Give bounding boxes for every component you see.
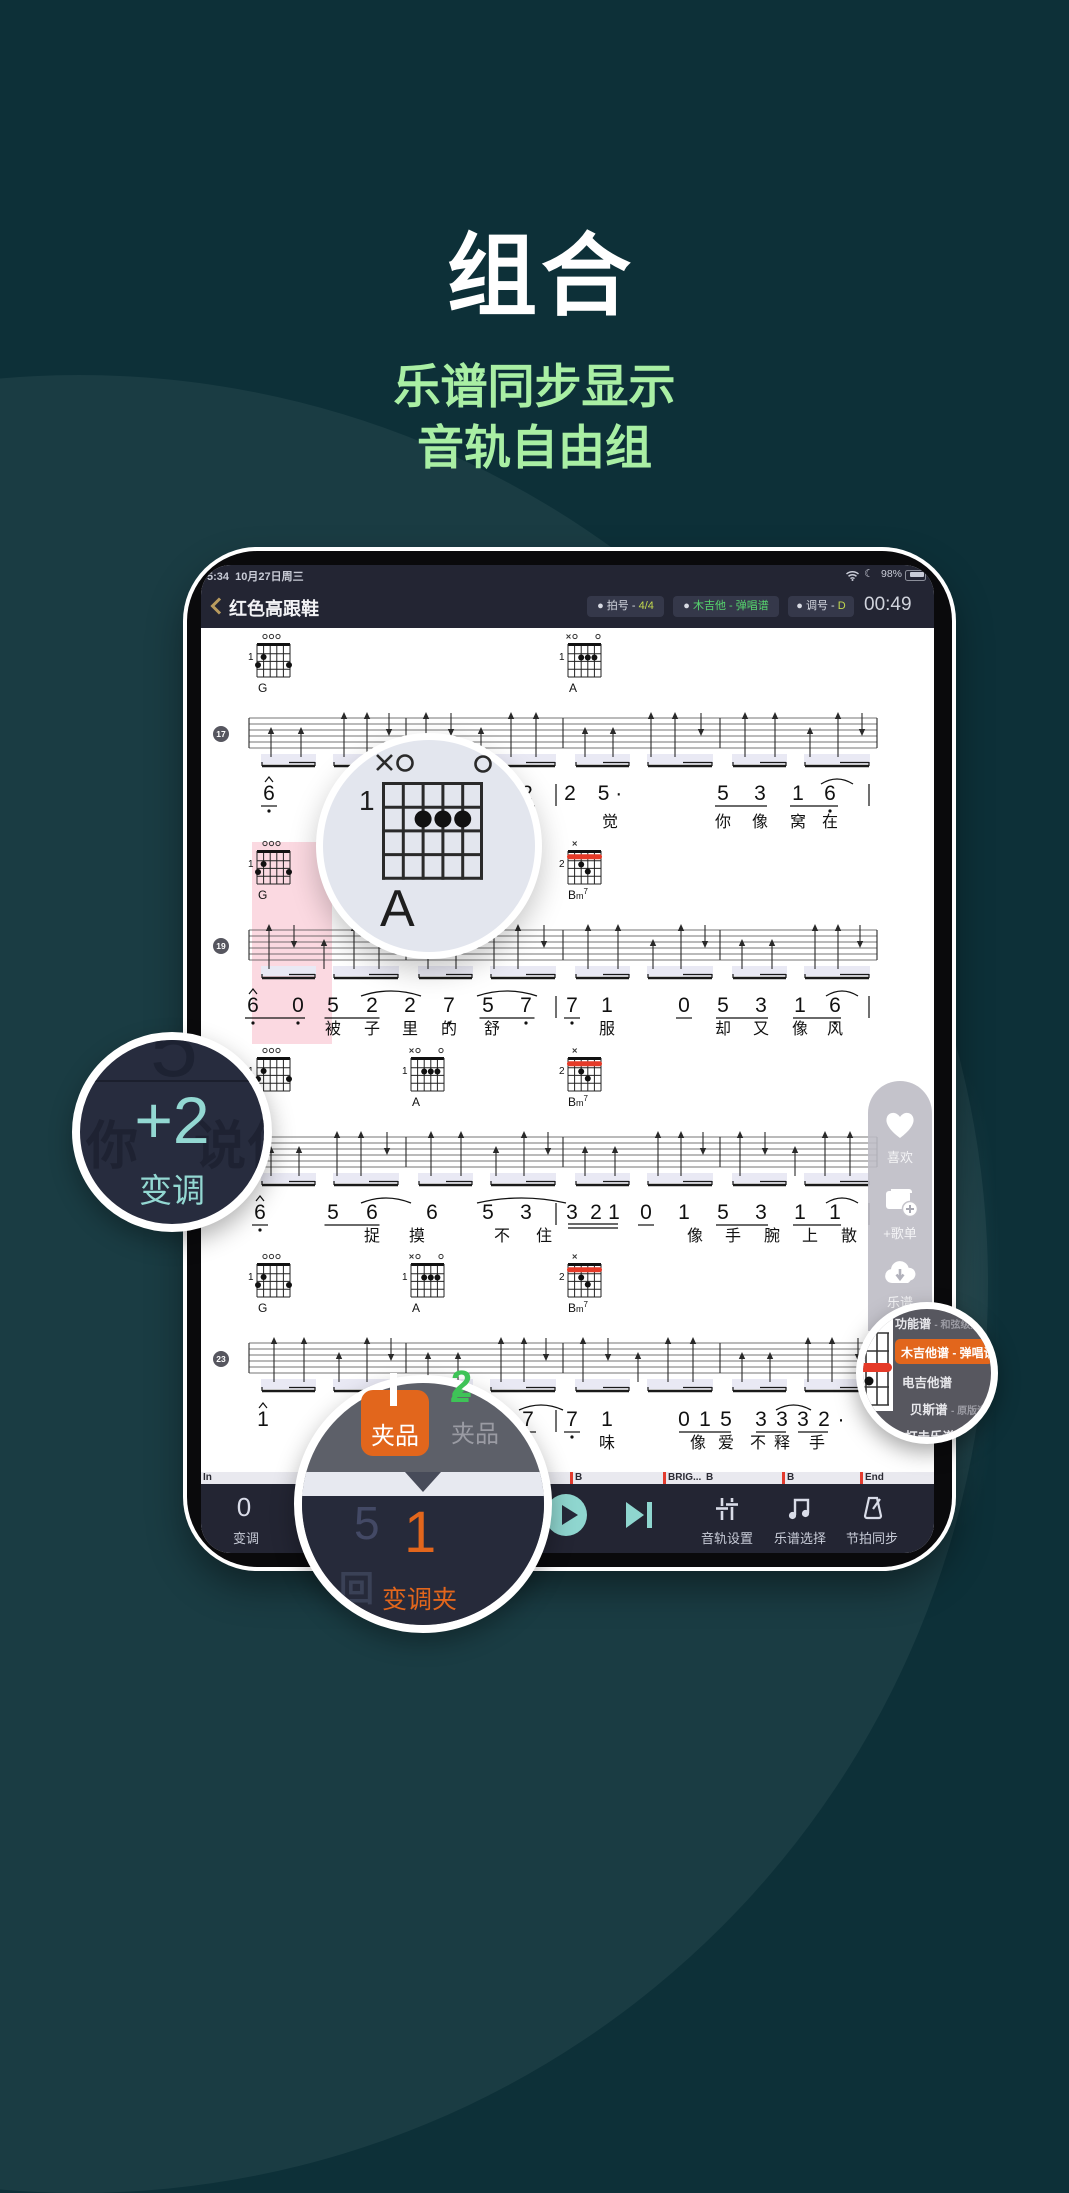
svg-text:1: 1 (794, 994, 806, 1017)
svg-text:2: 2 (590, 1201, 602, 1224)
svg-text:上: 上 (802, 1227, 818, 1245)
svg-text:0: 0 (292, 994, 304, 1017)
svg-text:被: 被 (325, 1020, 341, 1038)
svg-text:1: 1 (601, 1408, 613, 1431)
svg-text:像: 像 (752, 813, 768, 831)
svg-text:6: 6 (247, 994, 259, 1017)
svg-text:5: 5 (482, 1201, 494, 1224)
svg-text:1: 1 (678, 1201, 690, 1224)
svg-text:3: 3 (755, 994, 767, 1017)
svg-text:6: 6 (824, 782, 836, 805)
svg-text:像: 像 (687, 1227, 703, 1245)
svg-text:1: 1 (792, 782, 804, 805)
svg-text:服: 服 (599, 1020, 615, 1038)
svg-text:里: 里 (402, 1020, 418, 1038)
svg-text:不: 不 (494, 1228, 510, 1245)
svg-text:5: 5 (482, 994, 494, 1017)
svg-text:1: 1 (699, 1408, 711, 1431)
svg-text:1: 1 (257, 1408, 269, 1431)
svg-text:7: 7 (566, 1408, 578, 1431)
svg-text:5 ·: 5 · (598, 782, 623, 805)
svg-text:5: 5 (717, 994, 729, 1017)
svg-text:5: 5 (717, 782, 729, 805)
svg-text:6: 6 (829, 994, 841, 1017)
svg-text:A: A (380, 880, 415, 938)
svg-text:17: 17 (216, 729, 226, 739)
svg-text:2: 2 (366, 994, 378, 1017)
svg-text:3: 3 (754, 782, 766, 805)
svg-text:不: 不 (750, 1435, 766, 1452)
svg-text:·: · (838, 1408, 845, 1431)
svg-text:手: 手 (809, 1434, 825, 1452)
svg-text:19: 19 (216, 941, 226, 951)
svg-text:又: 又 (753, 1021, 769, 1038)
svg-text:7: 7 (520, 994, 532, 1017)
svg-text:2: 2 (564, 782, 576, 805)
svg-text:0: 0 (678, 1408, 690, 1431)
svg-text:7: 7 (443, 994, 455, 1017)
svg-text:6: 6 (263, 782, 275, 805)
svg-text:的: 的 (441, 1020, 457, 1038)
svg-text:爱: 爱 (718, 1434, 734, 1452)
svg-text:味: 味 (599, 1434, 615, 1452)
svg-text:3: 3 (755, 1201, 767, 1224)
svg-text:住: 住 (536, 1227, 552, 1245)
svg-text:摸: 摸 (409, 1227, 425, 1245)
svg-text:2: 2 (404, 994, 416, 1017)
svg-text:5: 5 (717, 1201, 729, 1224)
svg-text:5: 5 (327, 1201, 339, 1224)
svg-text:3: 3 (755, 1408, 767, 1431)
svg-text:风: 风 (827, 1021, 843, 1038)
svg-text:1: 1 (608, 1201, 620, 1224)
svg-text:23: 23 (216, 1354, 226, 1364)
svg-text:却: 却 (715, 1020, 731, 1038)
svg-text:像: 像 (792, 1020, 808, 1038)
svg-text:3: 3 (566, 1201, 578, 1224)
svg-text:2: 2 (818, 1408, 830, 1431)
svg-text:3: 3 (520, 1201, 532, 1224)
svg-text:5: 5 (327, 994, 339, 1017)
svg-text:释: 释 (774, 1434, 790, 1452)
svg-text:3: 3 (797, 1408, 809, 1431)
svg-text:1: 1 (829, 1201, 841, 1224)
svg-text:腕: 腕 (764, 1227, 780, 1245)
svg-text:1: 1 (794, 1201, 806, 1224)
svg-text:你: 你 (715, 813, 731, 831)
svg-text:舒: 舒 (484, 1020, 500, 1038)
svg-text:1: 1 (359, 785, 375, 816)
svg-text:子: 子 (364, 1020, 380, 1038)
svg-text:窝: 窝 (790, 813, 806, 831)
svg-text:6: 6 (366, 1201, 378, 1224)
svg-text:像: 像 (690, 1434, 706, 1452)
svg-text:3: 3 (776, 1408, 788, 1431)
svg-text:7: 7 (566, 994, 578, 1017)
svg-text:手: 手 (725, 1227, 741, 1245)
svg-text:5: 5 (720, 1408, 732, 1431)
svg-text:0: 0 (678, 994, 690, 1017)
svg-text:在: 在 (822, 813, 838, 831)
svg-text:6: 6 (426, 1201, 438, 1224)
svg-text:捉: 捉 (364, 1227, 380, 1245)
svg-text:0: 0 (640, 1201, 652, 1224)
svg-text:觉: 觉 (602, 813, 618, 831)
svg-text:散: 散 (841, 1227, 857, 1245)
svg-text:1: 1 (601, 994, 613, 1017)
